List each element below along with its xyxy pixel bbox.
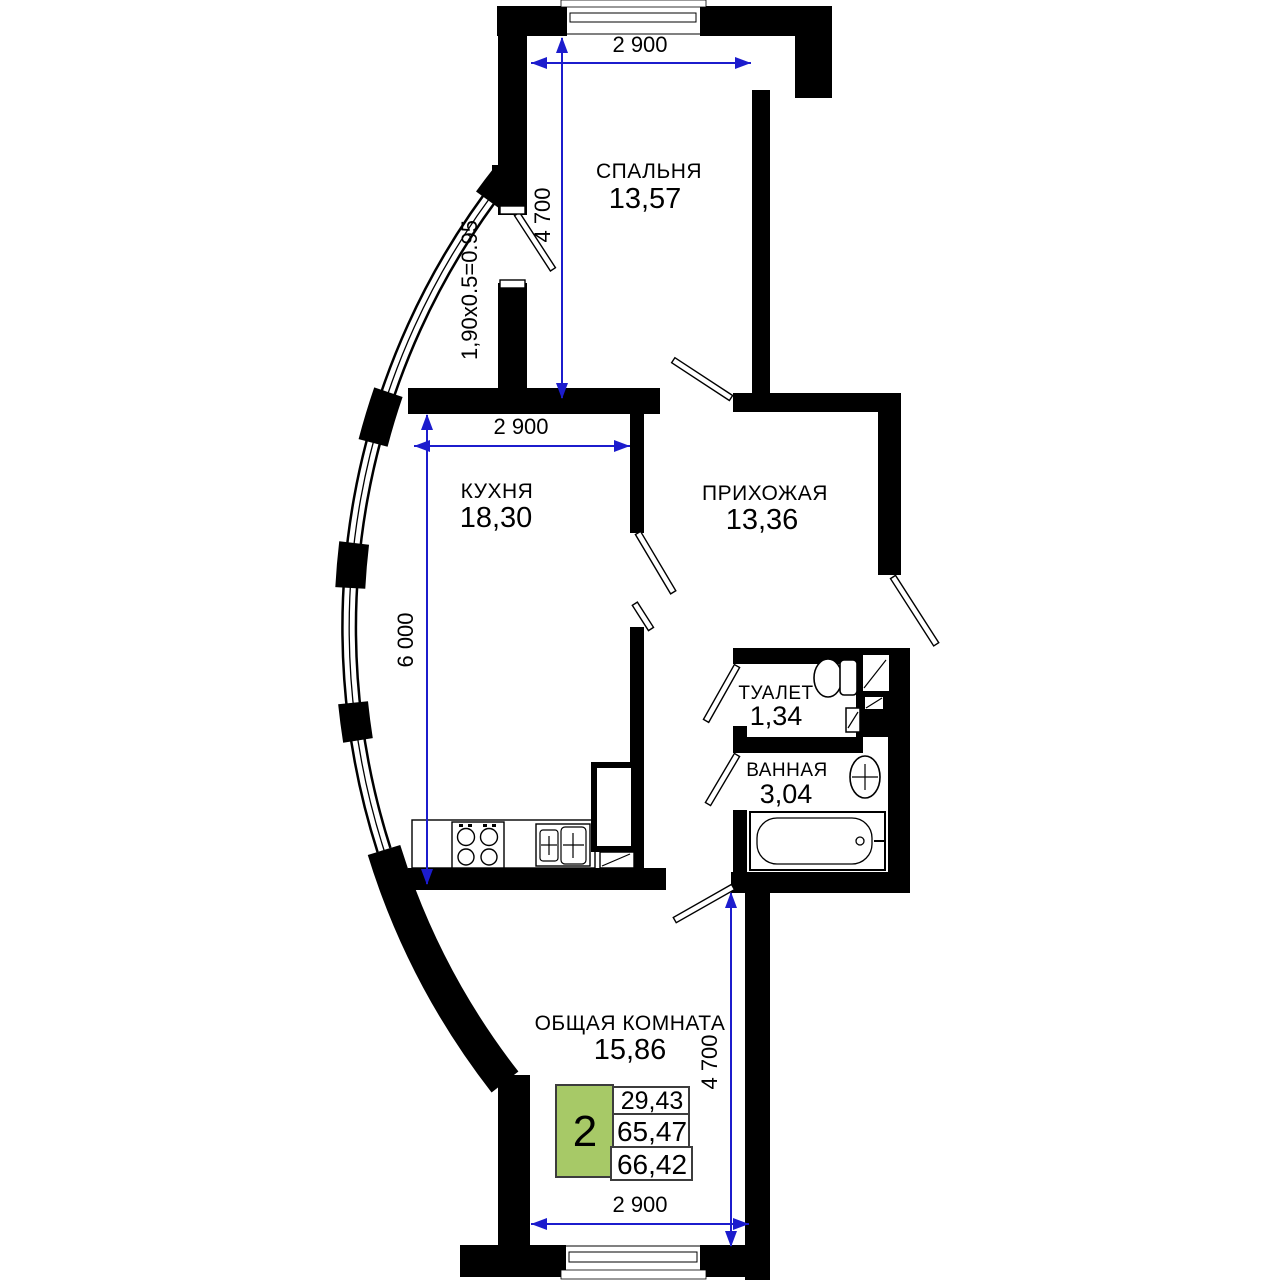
dim-bedroom-depth	[556, 37, 568, 399]
stove	[452, 822, 504, 868]
bedroom-door-leaf	[672, 358, 733, 401]
bedroom-window	[561, 0, 706, 34]
legend-apartment-area: 65,47	[617, 1116, 687, 1147]
kitchen-door-leaf	[635, 531, 675, 593]
bathtub	[750, 812, 885, 870]
wall	[733, 810, 747, 872]
room-area-kitchen: 18,30	[460, 502, 533, 534]
dim-label-living-depth: 4 700	[697, 1034, 722, 1089]
kitchen-sink	[536, 824, 590, 866]
wall	[498, 283, 527, 393]
wall	[733, 393, 901, 412]
dim-label-bedroom-depth: 4 700	[530, 187, 555, 242]
wall	[498, 33, 527, 215]
wall	[733, 726, 747, 753]
dim-kitchen-width	[414, 440, 630, 452]
floor-plan-page: СПАЛЬНЯ 13,57 КУХНЯ 18,30 ПРИХОЖАЯ 13,36…	[0, 0, 1280, 1280]
wall	[498, 1075, 530, 1277]
legend-total-area: 66,42	[617, 1149, 687, 1180]
dim-label-bedroom-width: 2 900	[612, 32, 667, 57]
floor-plan-drawing: СПАЛЬНЯ 13,57 КУХНЯ 18,30 ПРИХОЖАЯ 13,36…	[0, 0, 1280, 1280]
wall	[745, 885, 770, 1280]
door-jamb	[500, 280, 525, 288]
toilet-fixture	[814, 659, 857, 697]
balcony-area-formula: 1,90x0.5=0.95	[457, 220, 482, 360]
dim-living-width	[531, 1218, 749, 1230]
legend-living-area: 29,43	[621, 1087, 684, 1115]
toilet-door-leaf	[703, 665, 739, 723]
dim-label-living-width: 2 900	[612, 1192, 667, 1217]
wall	[795, 6, 832, 98]
area-legend: 2 29,43 65,47 66,42	[556, 1085, 692, 1180]
dim-bedroom-width	[531, 57, 751, 69]
room-area-toilet: 1,34	[750, 701, 803, 731]
dim-kitchen-depth	[421, 414, 433, 885]
bay-window-wall	[349, 165, 514, 1082]
room-area-living: 15,86	[594, 1034, 667, 1066]
room-area-bedroom: 13,57	[609, 183, 682, 215]
living-room-door-leaf	[673, 884, 734, 922]
door-jamb	[500, 206, 525, 214]
room-label-bathroom: ВАННАЯ	[746, 760, 828, 781]
wall	[700, 1245, 770, 1277]
wall	[888, 648, 910, 893]
room-label-bedroom: СПАЛЬНЯ	[596, 160, 702, 183]
wall	[408, 868, 666, 890]
wall	[878, 412, 901, 575]
entry-door-leaf	[890, 575, 938, 646]
wall	[733, 737, 863, 753]
living-room-window	[561, 1246, 706, 1279]
room-area-bathroom: 3,04	[760, 779, 813, 809]
room-area-hallway: 13,36	[726, 504, 799, 536]
dim-living-depth	[725, 892, 737, 1247]
vent-duct	[594, 765, 634, 849]
wall	[497, 6, 567, 36]
wall	[752, 90, 770, 412]
wall	[408, 388, 660, 414]
kitchen-door-small-leaf	[632, 602, 653, 631]
room-label-hallway: ПРИХОЖАЯ	[702, 482, 828, 505]
room-label-kitchen: КУХНЯ	[461, 480, 534, 503]
wall	[630, 412, 644, 533]
dim-label-kitchen-width: 2 900	[493, 414, 548, 439]
room-label-living: ОБЩАЯ КОМНАТА	[535, 1012, 726, 1035]
dim-label-kitchen-depth: 6 000	[393, 612, 418, 667]
bathroom-sink	[850, 756, 880, 798]
legend-room-count: 2	[573, 1107, 597, 1156]
bathroom-door-leaf	[705, 753, 739, 805]
